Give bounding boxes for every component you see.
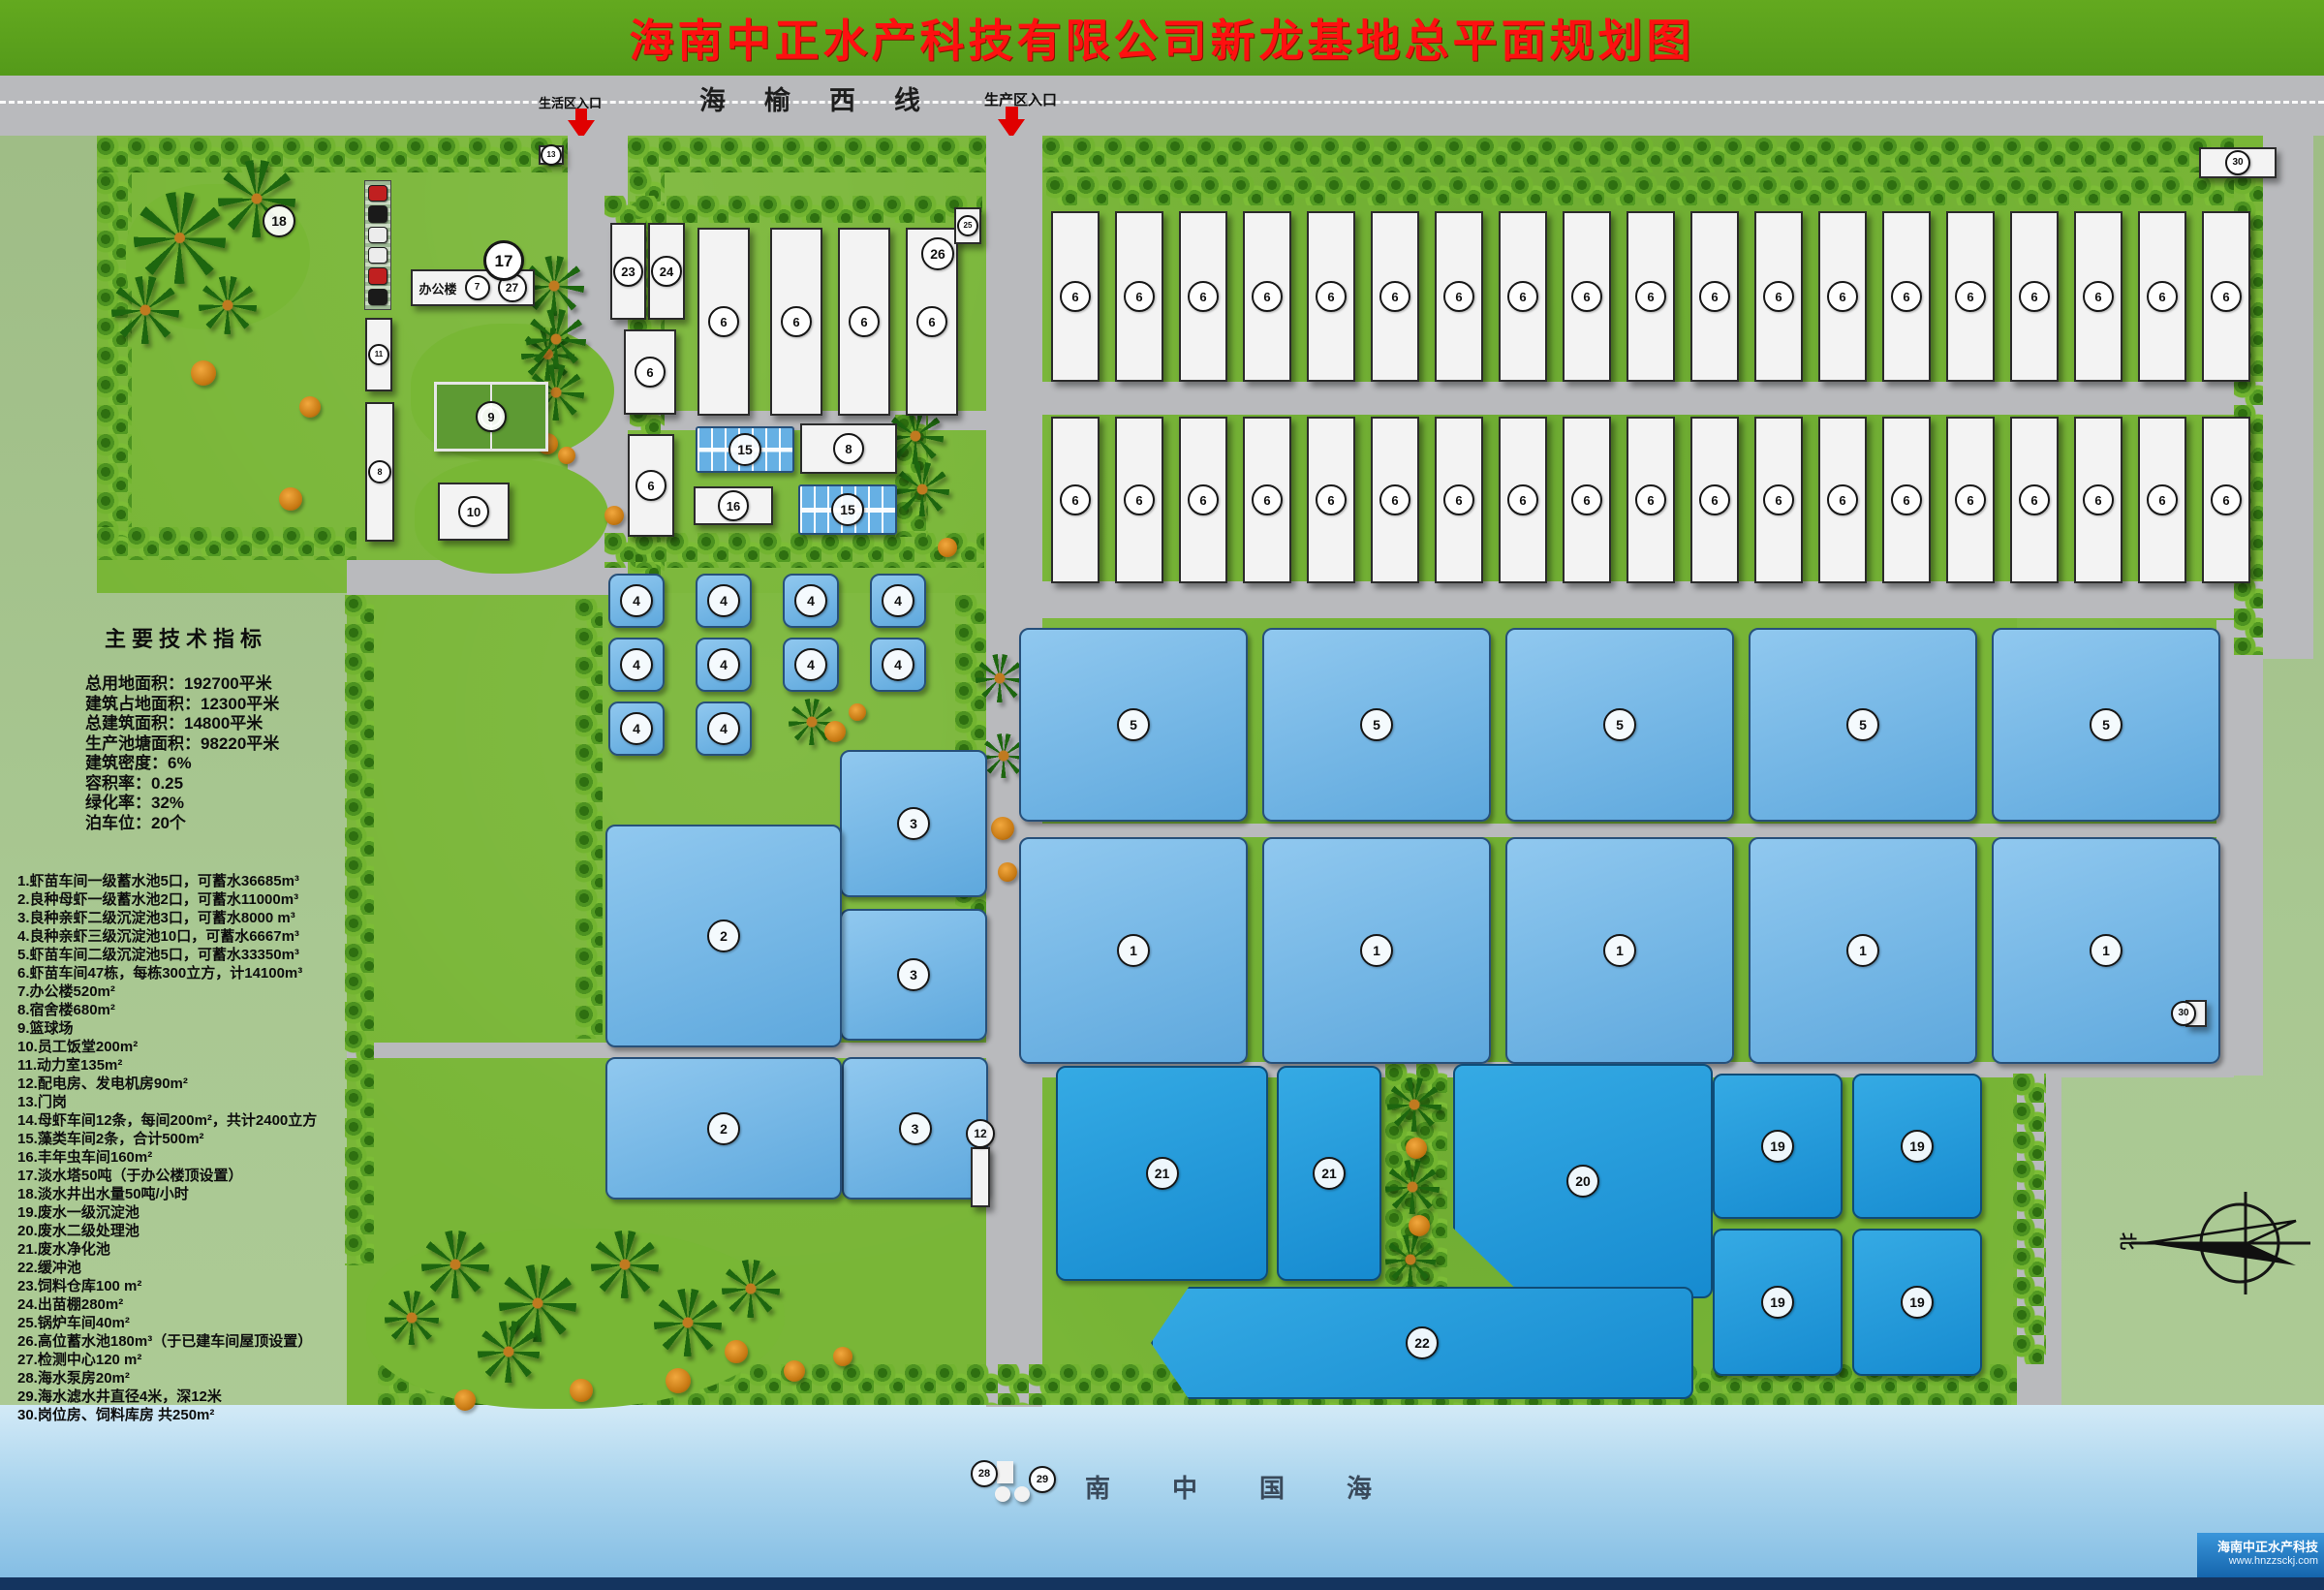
pond-19: 19 [1713, 1074, 1843, 1219]
pond-22: 22 [1151, 1287, 1693, 1399]
legend-item: 8.宿舍楼680m² [17, 1001, 362, 1019]
footer-bar [0, 1577, 2324, 1590]
indicator-line: 总用地面积：192700平米 [85, 674, 362, 695]
pond-4: 4 [696, 638, 752, 692]
orange-tree-icon [998, 862, 1017, 882]
legend-item: 27.检测中心120 m² [17, 1351, 362, 1369]
number-marker-6: 6 [1060, 484, 1091, 515]
tree-border [2013, 1074, 2046, 1364]
palm-tree-icon [722, 1260, 780, 1318]
orange-tree-icon [824, 721, 846, 742]
brine-shrimp-room-16: 16 [694, 486, 773, 525]
power-room-11: 11 [365, 318, 392, 391]
pond-19: 19 [1852, 1074, 1982, 1219]
shrimp-barn-6: 6 [1627, 417, 1675, 583]
number-marker-6: 6 [1124, 281, 1155, 312]
number-marker-4: 4 [707, 584, 740, 617]
orange-tree-icon [1406, 1138, 1427, 1159]
number-marker-3: 3 [897, 807, 930, 840]
palm-tree-icon [385, 1291, 439, 1345]
number-marker-8: 8 [833, 433, 864, 464]
legend-item: 4.良种亲虾三级沉淀池10口，可蓄水6667m³ [17, 927, 362, 946]
indicator-line: 生产池塘面积：98220平米 [85, 734, 362, 755]
pond-5: 5 [1992, 628, 2220, 822]
shrimp-barn-6: 6 [1946, 211, 1995, 382]
pond-1: 1 [1262, 837, 1491, 1064]
number-marker-4: 4 [794, 648, 827, 681]
number-marker-6: 6 [1188, 281, 1219, 312]
legend-item: 28.海水泵房20m² [17, 1369, 362, 1387]
number-marker-19: 19 [1901, 1286, 1934, 1319]
number-marker-19: 19 [1761, 1130, 1794, 1163]
legend-item: 22.缓冲池 [17, 1259, 362, 1277]
internal-road [2216, 657, 2263, 1076]
legend-item: 13.门岗 [17, 1093, 362, 1111]
number-marker-6: 6 [1124, 484, 1155, 515]
shrimp-barn-6: 6 [1051, 417, 1100, 583]
orange-tree-icon [784, 1360, 805, 1382]
tree-border [97, 138, 568, 172]
legend-item: 23.饲料仓库100 m² [17, 1277, 362, 1295]
number-marker-1: 1 [1846, 934, 1879, 967]
legend-item: 5.虾苗车间二级沉淀池5口，可蓄水33350m³ [17, 946, 362, 964]
legend-item: 2.良种母虾一级蓄水池2口，可蓄水11000m³ [17, 890, 362, 909]
orange-tree-icon [938, 538, 957, 557]
dormitory-8: 8 [365, 402, 394, 542]
number-marker-11: 11 [368, 344, 389, 365]
shrimp-barn-6: 6 [1499, 211, 1547, 382]
palm-tree-icon [895, 462, 949, 516]
shrimp-barn-6: 6 [2010, 417, 2059, 583]
number-marker-1: 1 [1603, 934, 1636, 967]
number-marker-4: 4 [794, 584, 827, 617]
indicators-heading: 主要技术指标 [14, 622, 362, 653]
internal-road [2216, 620, 2313, 657]
number-marker-29: 29 [1029, 1466, 1056, 1493]
number-marker-6: 6 [1443, 281, 1474, 312]
living-entrance-arrow [575, 109, 587, 120]
number-marker-2: 2 [707, 1112, 740, 1145]
number-marker-6: 6 [1571, 281, 1602, 312]
orange-tree-icon [725, 1340, 748, 1363]
shrimp-barn-6: 6 [2138, 211, 2186, 382]
number-marker-6: 6 [1316, 484, 1347, 515]
seawater-pump-house-icon [997, 1461, 1013, 1483]
production-entrance-arrow [1006, 107, 1018, 119]
parked-car-icon [368, 227, 387, 243]
number-marker-6: 6 [781, 306, 812, 337]
shrimp-barn-6: 6 [1115, 417, 1163, 583]
tree-border [345, 595, 374, 1265]
office-label: 办公楼 [418, 279, 456, 297]
orange-tree-icon [299, 396, 321, 418]
parking-strip [364, 180, 391, 310]
sea-label: 南中国海 [1085, 1469, 1434, 1505]
gatehouse-13: 13 [539, 145, 564, 165]
number-marker-6: 6 [1379, 484, 1410, 515]
indicator-line: 建筑占地面积：12300平米 [85, 695, 362, 715]
orange-tree-icon [570, 1379, 593, 1402]
feed-warehouse-23: 23 [610, 223, 646, 320]
number-marker-6: 6 [2019, 281, 2050, 312]
number-marker-4: 4 [620, 584, 653, 617]
shrimp-barn-6: 6 [1179, 417, 1227, 583]
number-marker-3: 3 [899, 1112, 932, 1145]
tree-border [575, 599, 603, 1039]
logo-url: www.hnzzsckj.com [2197, 1555, 2318, 1567]
number-marker-6: 6 [2083, 484, 2114, 515]
number-marker-4: 4 [620, 648, 653, 681]
shrimp-barn-6: 6 [1051, 211, 1100, 382]
pond-20: 20 [1453, 1064, 1713, 1298]
shrimp-barn-6: 6 [1754, 211, 1803, 382]
legend-item: 6.虾苗车间47栋，每栋300立方，计14100m³ [17, 964, 362, 982]
number-marker-6: 6 [1379, 281, 1410, 312]
internal-road [1042, 581, 2288, 618]
pond-1: 1 [1749, 837, 1977, 1064]
shrimp-barn-6: 6 [1563, 211, 1611, 382]
pond-19: 19 [1852, 1229, 1982, 1376]
highway-road [0, 76, 2324, 136]
legend-panel: 主要技术指标 总用地面积：192700平米建筑占地面积：12300平米总建筑面积… [14, 622, 362, 1424]
shrimp-barn-6: 6 [1435, 211, 1483, 382]
number-marker-13: 13 [541, 144, 562, 166]
shrimp-barn-6: 6 [1179, 211, 1227, 382]
internal-road [2263, 136, 2313, 659]
shrimp-barn-6: 6 [1818, 211, 1867, 382]
pond-4: 4 [783, 638, 839, 692]
number-marker-30: 30 [2225, 150, 2250, 175]
number-marker-21: 21 [1313, 1157, 1346, 1190]
orange-tree-icon [1409, 1215, 1430, 1236]
compass-icon [2131, 1190, 2315, 1296]
number-marker-1: 1 [1117, 934, 1150, 967]
guard-feed-store-30: 30 [2199, 147, 2277, 178]
palm-tree-icon [1385, 1160, 1440, 1214]
filter-well-icon [995, 1486, 1010, 1502]
production-entrance-label: 生产区入口 [984, 89, 1057, 109]
number-marker-6: 6 [1699, 484, 1730, 515]
legend-item: 29.海水滤水井直径4米，深12米 [17, 1387, 362, 1406]
number-marker-5: 5 [1117, 708, 1150, 741]
orange-tree-icon [991, 817, 1014, 840]
tree-border [97, 527, 356, 560]
palm-tree-icon [134, 192, 226, 284]
legend-list: 1.虾苗车间一级蓄水池5口，可蓄水36685m³2.良种母虾一级蓄水池2口，可蓄… [14, 872, 362, 1424]
boiler-25: 25 [954, 207, 981, 244]
pond-1: 1 [1019, 837, 1248, 1064]
number-marker-6: 6 [1060, 281, 1091, 312]
shrimp-barn-6: 6 [2074, 211, 2123, 382]
number-marker-4: 4 [707, 712, 740, 745]
number-marker-6: 6 [635, 357, 666, 388]
number-marker-30: 30 [2171, 1001, 2196, 1026]
number-marker-4: 4 [620, 712, 653, 745]
basketball-court-9: 9 [434, 382, 548, 452]
shrimp-barn-6: 6 [1243, 417, 1291, 583]
legend-item: 11.动力室135m² [17, 1056, 362, 1075]
number-marker-6: 6 [2147, 484, 2178, 515]
indicator-line: 绿化率：32% [85, 794, 362, 814]
header-band: 海南中正水产科技有限公司新龙基地总平面规划图 [0, 0, 2324, 76]
shrimp-barn-6: 6 [770, 228, 822, 416]
legend-item: 24.出苗棚280m² [17, 1295, 362, 1314]
highway-label: 海榆西线 [699, 79, 959, 117]
indicators-list: 总用地面积：192700平米建筑占地面积：12300平米总建筑面积：14800平… [14, 674, 362, 833]
number-marker-28: 28 [971, 1460, 998, 1487]
pond-4: 4 [870, 638, 926, 692]
palm-tree-icon [478, 1321, 540, 1383]
number-marker-17: 17 [483, 240, 524, 281]
number-marker-6: 6 [1252, 484, 1283, 515]
shrimp-barn-6: 6 [2202, 211, 2250, 382]
parked-car-icon [368, 185, 387, 202]
pond-21: 21 [1056, 1066, 1268, 1281]
pond-21: 21 [1277, 1066, 1381, 1281]
legend-item: 30.岗位房、饲料库房 共250m² [17, 1406, 362, 1424]
number-marker-6: 6 [1571, 484, 1602, 515]
pond-4: 4 [696, 574, 752, 628]
number-marker-21: 21 [1146, 1157, 1179, 1190]
shrimp-barn-6: 6 [1371, 211, 1419, 382]
number-marker-19: 19 [1901, 1130, 1934, 1163]
compass-north-label: 北 [2116, 1232, 2141, 1250]
legend-item: 9.篮球场 [17, 1019, 362, 1038]
number-marker-5: 5 [2090, 708, 2123, 741]
number-marker-1: 1 [2090, 934, 2123, 967]
tree-border [97, 172, 132, 541]
pond-5: 5 [1019, 628, 1248, 822]
shrimp-barn-6: 6 [1882, 211, 1931, 382]
palm-tree-icon [526, 309, 586, 369]
legend-item: 15.藻类车间2条，合计500m² [17, 1130, 362, 1148]
shrimp-barn-6: 6 [838, 228, 890, 416]
legend-item: 7.办公楼520m² [17, 982, 362, 1001]
number-marker-6: 6 [2211, 484, 2242, 515]
parked-car-icon [368, 247, 387, 264]
legend-item: 21.废水净化池 [17, 1240, 362, 1259]
road-center-dashline [0, 101, 2324, 104]
legend-item: 3.良种亲虾二级沉淀池3口，可蓄水8000 m³ [17, 909, 362, 927]
number-marker-6: 6 [2083, 281, 2114, 312]
number-marker-6: 6 [849, 306, 880, 337]
number-marker-5: 5 [1603, 708, 1636, 741]
indicator-line: 泊车位：20个 [85, 814, 362, 834]
pond-15: 15 [798, 484, 897, 535]
shrimp-barn-6: 6 [1307, 417, 1355, 583]
number-marker-20: 20 [1566, 1165, 1599, 1198]
shrimp-barn-6: 6 [628, 434, 674, 537]
number-marker-6: 6 [1316, 281, 1347, 312]
pond-4: 4 [608, 638, 665, 692]
number-marker-6: 6 [1635, 484, 1666, 515]
legend-item: 1.虾苗车间一级蓄水池5口，可蓄水36685m³ [17, 872, 362, 890]
orange-tree-icon [849, 703, 866, 721]
number-marker-19: 19 [1761, 1286, 1794, 1319]
number-marker-18: 18 [263, 204, 295, 237]
pond-3: 3 [840, 750, 987, 897]
legend-item: 14.母虾车间12条，每间200m²，共计2400立方 [17, 1111, 362, 1130]
shrimp-barn-6: 6 [1563, 417, 1611, 583]
pond-1: 1 [1505, 837, 1734, 1064]
number-marker-6: 6 [1827, 281, 1858, 312]
shrimp-barn-6: 6 [1371, 417, 1419, 583]
palm-tree-icon [591, 1231, 659, 1298]
palm-tree-icon [111, 276, 179, 344]
shrimp-barn-6: 6 [2074, 417, 2123, 583]
number-marker-24: 24 [651, 256, 682, 287]
legend-item: 10.员工饭堂200m² [17, 1038, 362, 1056]
number-marker-6: 6 [1955, 281, 1986, 312]
number-marker-10: 10 [458, 496, 489, 527]
number-marker-12: 12 [966, 1119, 995, 1148]
number-marker-15: 15 [831, 493, 864, 526]
shrimp-barn-6: 6 [1115, 211, 1163, 382]
palm-tree-icon [421, 1231, 489, 1298]
shrimp-barn-6: 6 [1307, 211, 1355, 382]
pond-1: 1 [1992, 837, 2220, 1064]
shrimp-barn-6: 6 [1882, 417, 1931, 583]
number-marker-6: 6 [2211, 281, 2242, 312]
palm-tree-icon [976, 654, 1024, 702]
number-marker-7: 7 [465, 275, 490, 300]
tree-border [1042, 138, 2234, 172]
number-marker-6: 6 [1763, 484, 1794, 515]
number-marker-6: 6 [1955, 484, 1986, 515]
pond-4: 4 [783, 574, 839, 628]
shrimp-barn-6: 6 [2010, 211, 2059, 382]
pond-4: 4 [608, 574, 665, 628]
parked-car-icon [368, 289, 387, 305]
number-marker-6: 6 [1507, 484, 1538, 515]
number-marker-6: 6 [1443, 484, 1474, 515]
number-marker-6: 6 [1891, 281, 1922, 312]
number-marker-6: 6 [916, 306, 947, 337]
number-marker-4: 4 [707, 648, 740, 681]
company-logo-box: 海南中正水产科技 www.hnzzsckj.com [2197, 1533, 2324, 1577]
internal-road [1042, 824, 2255, 837]
number-marker-6: 6 [1188, 484, 1219, 515]
indicator-line: 建筑密度：6% [85, 754, 362, 774]
shrimp-barn-6: 6 [1499, 417, 1547, 583]
number-marker-6: 6 [1827, 484, 1858, 515]
legend-item: 18.淡水井出水量50吨/小时 [17, 1185, 362, 1203]
dormitory-8b: 8 [800, 423, 897, 474]
shrimp-barn-6: 6 [1818, 417, 1867, 583]
number-marker-26: 26 [921, 237, 954, 270]
shrimp-barn-6: 6 [1435, 417, 1483, 583]
shrimp-barn-6: 6 [2138, 417, 2186, 583]
number-marker-6: 6 [1635, 281, 1666, 312]
pond-2: 2 [605, 1057, 842, 1200]
orange-tree-icon [666, 1368, 691, 1393]
pond-3: 3 [840, 909, 987, 1041]
number-marker-3: 3 [897, 958, 930, 991]
legend-item: 26.高位蓄水池180m³（于已建车间屋顶设置） [17, 1332, 362, 1351]
number-marker-6: 6 [1891, 484, 1922, 515]
orange-tree-icon [454, 1389, 476, 1411]
tree-border [628, 138, 986, 172]
palm-tree-icon [199, 276, 257, 334]
shrimp-barn-6: 6 [1690, 211, 1739, 382]
number-marker-25: 25 [957, 215, 978, 236]
compass: 北 [2131, 1190, 2315, 1301]
shrimp-barn-6: 6 [1627, 211, 1675, 382]
tree-border [1046, 176, 2234, 205]
shrimp-barn-6: 6 [624, 329, 676, 415]
pond-4: 4 [870, 574, 926, 628]
site-plan-canvas: 海南中正水产科技有限公司新龙基地总平面规划图 海榆西线 生活区入口 生产区入口 … [0, 0, 2324, 1590]
fry-shed-24: 24 [648, 223, 685, 320]
palm-tree-icon [1385, 1234, 1436, 1285]
shrimp-barn-6: 6 [1243, 211, 1291, 382]
filter-well-icon [1014, 1486, 1030, 1502]
legend-item: 20.废水二级处理池 [17, 1222, 362, 1240]
logo-company-name: 海南中正水产科技 [2197, 1537, 2318, 1555]
orange-tree-icon [833, 1347, 852, 1366]
number-marker-15: 15 [728, 433, 761, 466]
canteen-10: 10 [438, 483, 510, 541]
shrimp-barn-6: 6 [1754, 417, 1803, 583]
number-marker-22: 22 [1406, 1326, 1439, 1359]
tree-border [604, 196, 982, 223]
number-marker-6: 6 [2147, 281, 2178, 312]
number-marker-9: 9 [476, 401, 507, 432]
number-marker-4: 4 [882, 584, 914, 617]
number-marker-6: 6 [1763, 281, 1794, 312]
orange-tree-icon [558, 447, 575, 464]
number-marker-8: 8 [368, 460, 391, 483]
pond-15: 15 [696, 426, 794, 473]
pond-2: 2 [605, 825, 842, 1047]
number-marker-5: 5 [1360, 708, 1393, 741]
number-marker-6: 6 [1699, 281, 1730, 312]
shrimp-barn-6: 6 [697, 228, 750, 416]
plan-title: 海南中正水产科技有限公司新龙基地总平面规划图 [630, 6, 1695, 70]
number-marker-16: 16 [718, 490, 749, 521]
orange-tree-icon [279, 487, 302, 511]
number-marker-4: 4 [882, 648, 914, 681]
shrimp-barn-6: 6 [1690, 417, 1739, 583]
legend-item: 16.丰年虫车间160m² [17, 1148, 362, 1167]
palm-tree-icon [1387, 1077, 1441, 1132]
number-marker-6: 6 [708, 306, 739, 337]
number-marker-1: 1 [1360, 934, 1393, 967]
pond-4: 4 [608, 701, 665, 756]
shrimp-barn-6: 6 [2202, 417, 2250, 583]
pond-5: 5 [1262, 628, 1491, 822]
legend-item: 19.废水一级沉淀池 [17, 1203, 362, 1222]
pond-19: 19 [1713, 1229, 1843, 1376]
number-marker-23: 23 [613, 257, 643, 287]
legend-item: 12.配电房、发电机房90m² [17, 1075, 362, 1093]
orange-tree-icon [604, 506, 624, 525]
number-marker-6: 6 [635, 470, 666, 501]
parked-car-icon [368, 267, 387, 284]
number-marker-6: 6 [2019, 484, 2050, 515]
number-marker-5: 5 [1846, 708, 1879, 741]
number-marker-6: 6 [1252, 281, 1283, 312]
pond-5: 5 [1505, 628, 1734, 822]
pond-4: 4 [696, 701, 752, 756]
number-marker-2: 2 [707, 920, 740, 952]
orange-tree-icon [191, 360, 216, 386]
indicator-line: 总建筑面积：14800平米 [85, 714, 362, 734]
tree-border [604, 533, 984, 568]
shrimp-barn-6: 6 [1946, 417, 1995, 583]
palm-tree-icon [654, 1289, 722, 1356]
parked-car-icon [368, 205, 387, 222]
